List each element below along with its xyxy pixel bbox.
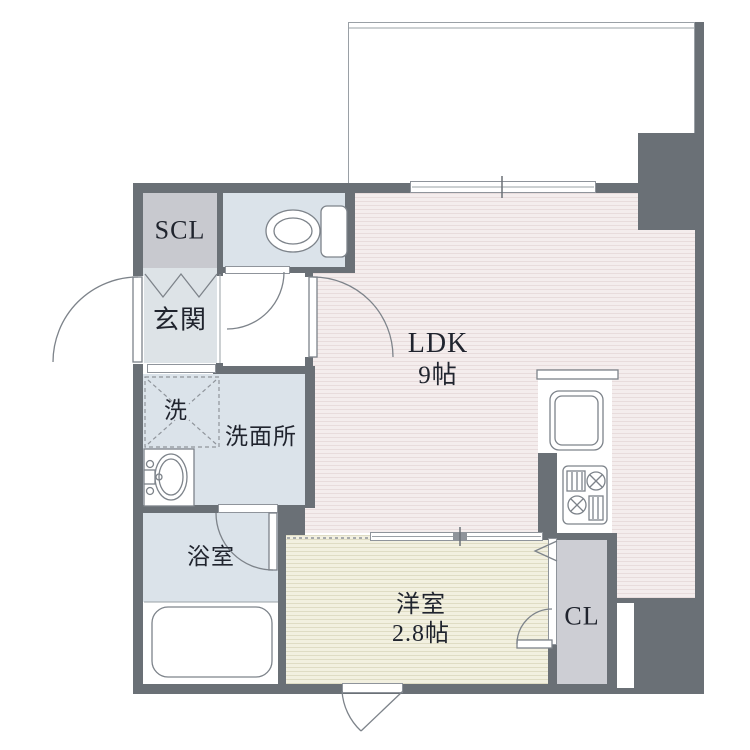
ldk-door-leaf — [309, 277, 317, 357]
folding-door-zigzag — [145, 274, 217, 297]
room-label-washer: 洗 — [164, 397, 188, 425]
toilet-icon — [266, 206, 347, 257]
bedroom-name: 洋室 — [392, 591, 450, 620]
bedroom-size: 2.8帖 — [392, 620, 450, 649]
ldk-name: LDK — [408, 327, 469, 361]
exterior-door-swing-arc — [342, 691, 361, 731]
ldk-door-swing-arc — [313, 277, 393, 357]
room-label-genkan: 玄関 — [153, 304, 207, 335]
front-door-leaf — [133, 277, 142, 362]
bathtub-icon — [152, 607, 272, 677]
room-label-bathroom: 浴室 — [187, 543, 235, 571]
room-label-bedroom: 洋室 2.8帖 — [392, 591, 450, 649]
exterior-door-leaf-line — [361, 691, 403, 731]
kitchen-sink-icon — [550, 391, 603, 450]
bedroom-door-swing-arc — [517, 609, 552, 644]
toilet-door-swing-arc — [227, 272, 284, 329]
room-label-closet: CL — [564, 600, 599, 631]
room-label-washroom: 洗面所 — [225, 423, 297, 451]
ldk-size: 9帖 — [408, 361, 469, 391]
stove-icon — [563, 466, 607, 524]
bathroom-door-leaf — [269, 513, 277, 570]
floor-plan: SCL 玄関 洗 洗面所 浴室 LDK 9帖 洋室 2.8帖 CL — [0, 0, 750, 750]
room-label-ldk: LDK 9帖 — [408, 327, 469, 391]
fixtures-overlay — [0, 0, 750, 750]
vanity-sink-icon — [144, 449, 194, 506]
closet-door-chevron — [535, 541, 557, 561]
front-door-swing-arc — [53, 277, 138, 362]
bedroom-door-leaf — [517, 640, 552, 648]
room-label-scl: SCL — [155, 214, 206, 245]
kitchen-counter-bar — [537, 370, 618, 379]
